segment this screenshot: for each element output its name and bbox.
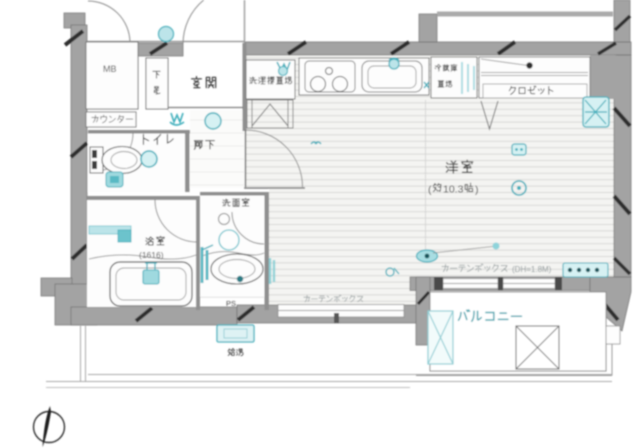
svg-text:(DH=1.8M): (DH=1.8M) bbox=[512, 265, 552, 274]
svg-text:PS: PS bbox=[226, 299, 236, 308]
svg-text:(: ( bbox=[428, 184, 432, 196]
svg-text:10.3: 10.3 bbox=[443, 184, 464, 196]
svg-text:): ) bbox=[475, 184, 479, 196]
svg-text:MB: MB bbox=[103, 64, 117, 74]
